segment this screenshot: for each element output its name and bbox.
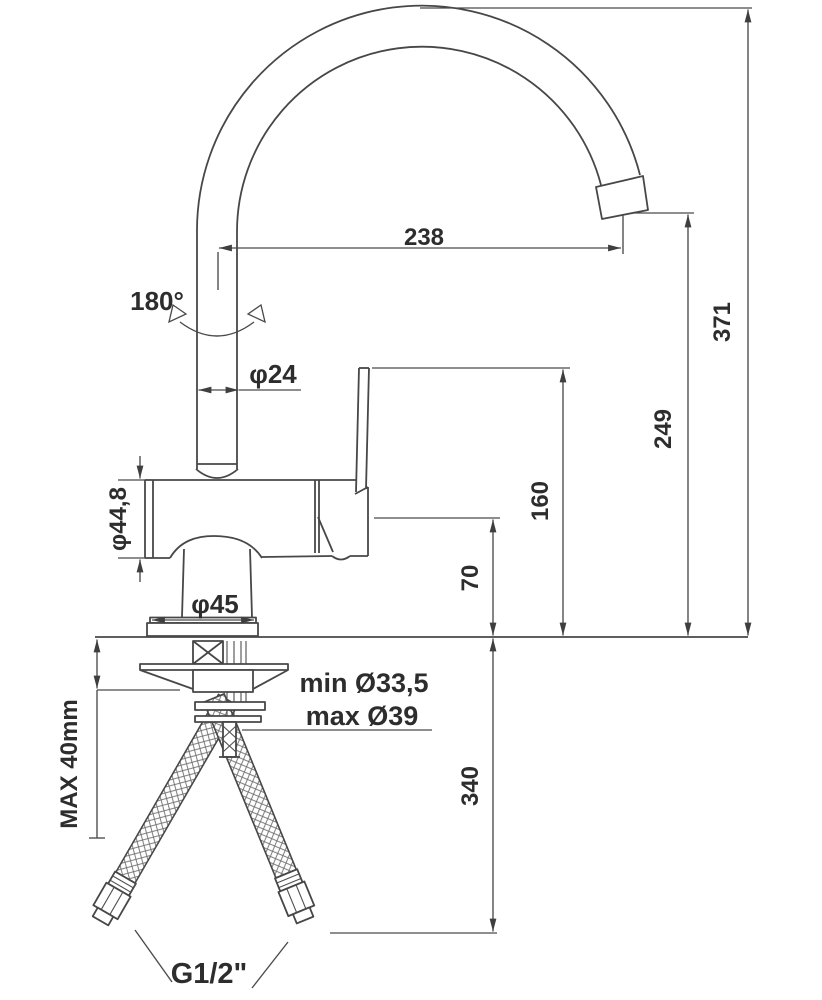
base-column: [147, 536, 262, 636]
mounting-nut: [193, 670, 253, 692]
label-tube-diameter: φ24: [249, 359, 297, 389]
label-hose-thread: G1/2": [171, 958, 248, 990]
dim-overall-height: [420, 8, 752, 636]
label-swivel-angle: 180°: [130, 286, 184, 316]
threaded-stud: [219, 722, 240, 757]
label-hose-drop: 340: [457, 766, 484, 806]
label-overall-height: 371: [709, 302, 736, 342]
faucet-technical-drawing: 238 φ24 180° φ44,8 φ45 160 70 249 371 34…: [0, 0, 822, 1000]
supply-hoses: [88, 693, 318, 928]
label-lever-height: 160: [527, 481, 554, 521]
label-body-diameter: φ44,8: [105, 487, 132, 551]
spout-inner-arc: [237, 47, 601, 233]
label-body-height: 70: [457, 565, 484, 592]
label-outlet-height: 249: [650, 409, 677, 449]
faucet-outline: [95, 6, 748, 637]
label-hole-max: max Ø39: [306, 701, 419, 731]
swivel-arrow-right: [248, 305, 265, 322]
label-hole-min: min Ø33,5: [299, 668, 428, 698]
dimension-annotations: [89, 8, 752, 988]
label-base-diameter: φ45: [191, 589, 239, 619]
drawing-canvas: 238 φ24 180° φ44,8 φ45 160 70 249 371 34…: [0, 0, 822, 1000]
base-flange: [147, 623, 258, 636]
cartridge-joint-line: [318, 517, 333, 552]
label-spout-reach: 238: [404, 224, 444, 251]
label-deck-thickness: MAX 40mm: [56, 699, 83, 828]
right-supply-hose: [201, 693, 318, 926]
spout-outer-arc: [197, 6, 640, 233]
handle-lever: [355, 368, 369, 494]
dimension-labels: 238 φ24 180° φ44,8 φ45 160 70 249 371 34…: [56, 224, 736, 990]
